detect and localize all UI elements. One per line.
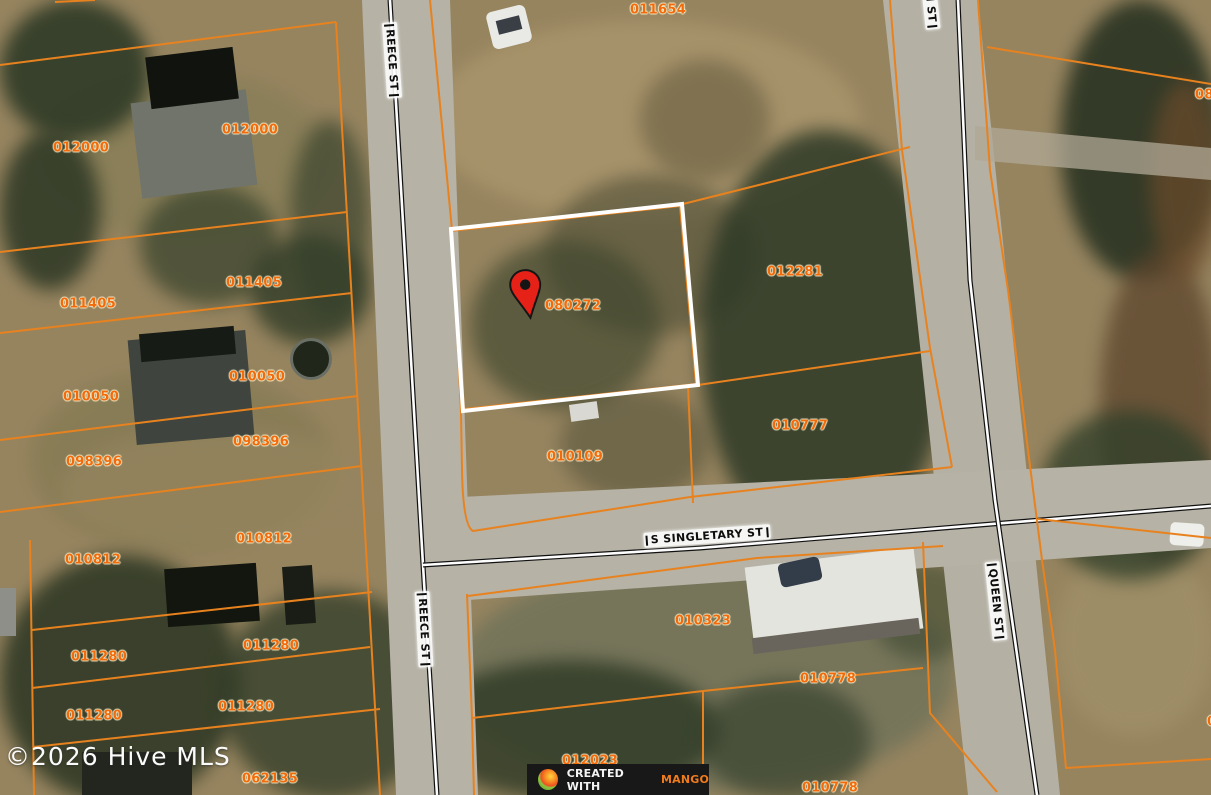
parcel-label: 062135 xyxy=(242,772,298,787)
parcel-label: 010778 xyxy=(800,672,856,687)
created-with-mango-badge: CREATED WITH MANGO xyxy=(527,764,709,795)
parcel-label: 011654 xyxy=(630,3,686,18)
parcel-label: 010812 xyxy=(236,532,292,547)
subject-parcel-label: 080272 xyxy=(545,299,601,314)
parcel-label: 098396 xyxy=(66,455,122,470)
mls-watermark: ©2026 Hive MLS xyxy=(5,742,231,771)
parcel-label: 098396 xyxy=(233,435,289,450)
parcel-label: 080 xyxy=(1195,88,1211,103)
parcel-label: 010777 xyxy=(772,419,828,434)
parcel-lines-layer xyxy=(0,0,1211,795)
parcel-label: 012281 xyxy=(767,265,823,280)
parcel-label: 011280 xyxy=(218,700,274,715)
parcel-label: 012000 xyxy=(53,141,109,156)
mango-icon xyxy=(538,769,558,790)
parcel-label: 010050 xyxy=(229,370,285,385)
badge-prefix: CREATED WITH xyxy=(567,767,656,793)
parcel-label: 010050 xyxy=(63,390,119,405)
location-pin-icon xyxy=(508,268,545,320)
parcel-label: 011280 xyxy=(243,639,299,654)
parcel-label: 010323 xyxy=(675,614,731,629)
parcel-label: 012000 xyxy=(222,123,278,138)
parcel-label: 010 xyxy=(1207,715,1211,730)
aerial-parcel-map[interactable]: 012000 011405 010050 098396 010812 01128… xyxy=(0,0,1211,795)
parcel-label: 010109 xyxy=(547,450,603,465)
parcel-label: 010778 xyxy=(802,781,858,795)
parcel-label: 011405 xyxy=(60,297,116,312)
parcel-label: 011405 xyxy=(226,276,282,291)
parcel-label: 011280 xyxy=(66,709,122,724)
parcel-label: 011280 xyxy=(71,650,127,665)
badge-brand: MANGO xyxy=(661,773,709,786)
parcel-label: 010812 xyxy=(65,553,121,568)
